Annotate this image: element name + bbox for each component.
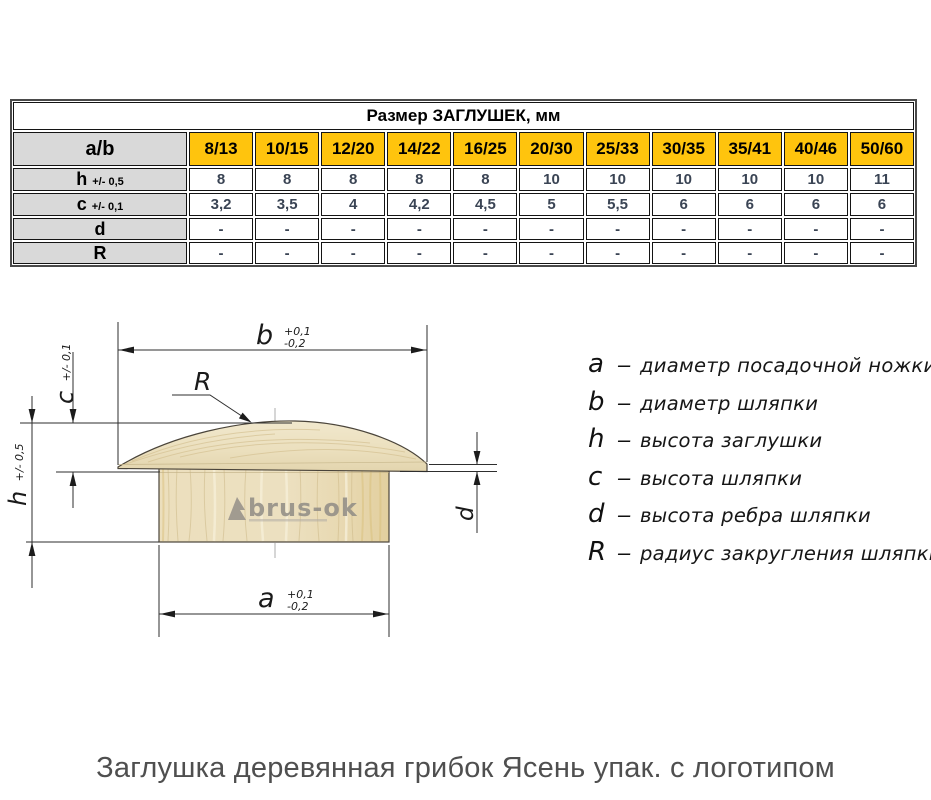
value-R-3: - [387,242,451,264]
legend-symbol: d [588,499,618,529]
value-d-5: - [519,218,583,240]
value-h-3: 8 [387,168,451,191]
legend-dash: – [618,465,640,491]
value-h-5: 10 [519,168,583,191]
corner-header: a/b [13,132,187,166]
value-h-2: 8 [321,168,385,191]
size-column-header-2: 12/20 [321,132,385,166]
value-h-1: 8 [255,168,319,191]
value-h-7: 10 [652,168,716,191]
dim-label-a: a [258,583,275,614]
legend-symbol: b [588,387,618,417]
value-R-10: - [850,242,914,264]
value-d-8: - [718,218,782,240]
value-d-2: - [321,218,385,240]
value-d-1: - [255,218,319,240]
value-d-10: - [850,218,914,240]
value-d-6: - [586,218,650,240]
legend-symbol: c [588,462,618,492]
legend-description: высота ребра шляпки [640,504,871,527]
legend-item-R: R–радиус закругления шляпки [588,537,923,575]
size-column-header-4: 16/25 [453,132,517,166]
value-R-1: - [255,242,319,264]
plug-cap [118,421,427,472]
size-column-header-1: 10/15 [255,132,319,166]
legend-description: высота заглушки [640,429,822,452]
value-c-7: 6 [652,193,716,216]
legend-description: высота шляпки [640,467,802,490]
size-column-header-10: 50/60 [850,132,914,166]
value-c-4: 4,5 [453,193,517,216]
value-h-9: 10 [784,168,848,191]
row-label-d: d [13,218,187,240]
legend-item-a: a–диаметр посадочной ножки [588,349,923,387]
size-column-header-5: 20/30 [519,132,583,166]
value-c-8: 6 [718,193,782,216]
legend-dash: – [618,427,640,453]
legend-symbol: R [588,537,618,567]
dim-label-h: h +/- 0,5 [4,443,32,506]
value-c-5: 5 [519,193,583,216]
value-c-1: 3,5 [255,193,319,216]
value-d-9: - [784,218,848,240]
size-column-header-8: 35/41 [718,132,782,166]
legend-dash: – [618,540,640,566]
legend-item-b: b–диаметр шляпки [588,387,923,425]
row-label-h: h+/- 0,5 [13,168,187,191]
dim-label-c: c +/- 0,1 [51,343,79,404]
size-column-header-9: 40/46 [784,132,848,166]
legend-item-c: c–высота шляпки [588,462,923,500]
value-R-4: - [453,242,517,264]
size-table: Размер ЗАГЛУШЕК, ммa/b8/1310/1512/2014/2… [10,99,917,267]
legend-dash: – [618,390,640,416]
dim-label-d: d [453,506,479,521]
svg-text:-0,2: -0,2 [287,600,308,613]
value-d-0: - [189,218,253,240]
value-R-0: - [189,242,253,264]
dim-label-R: R [194,367,211,396]
legend-item-h: h–высота заглушки [588,424,923,462]
value-c-2: 4 [321,193,385,216]
dim-label-b: b [256,320,273,351]
legend-description: диаметр посадочной ножки [640,354,931,377]
row-label-c: c+/- 0,1 [13,193,187,216]
row-label-R: R [13,242,187,264]
legend-dash: – [618,352,640,378]
value-h-8: 10 [718,168,782,191]
svg-text:-0,2: -0,2 [284,337,305,350]
value-d-3: - [387,218,451,240]
legend-dash: – [618,502,640,528]
value-R-5: - [519,242,583,264]
legend-item-d: d–высота ребра шляпки [588,499,923,537]
watermark: brus-ok [228,494,358,522]
value-h-10: 11 [850,168,914,191]
value-R-2: - [321,242,385,264]
legend-description: диаметр шляпки [640,392,818,415]
value-R-7: - [652,242,716,264]
technical-drawing: brus-ok [0,300,540,645]
legend-description: радиус закругления шляпки [640,542,931,565]
legend-symbol: a [588,349,618,379]
legend: a–диаметр посадочной ножкиb–диаметр шляп… [588,349,923,575]
value-h-0: 8 [189,168,253,191]
value-c-6: 5,5 [586,193,650,216]
size-column-header-3: 14/22 [387,132,451,166]
legend-symbol: h [588,424,618,454]
value-c-3: 4,2 [387,193,451,216]
size-column-header-6: 25/33 [586,132,650,166]
value-h-4: 8 [453,168,517,191]
value-R-6: - [586,242,650,264]
product-caption: Заглушка деревянная грибок Ясень упак. с… [0,752,931,785]
size-column-header-7: 30/35 [652,132,716,166]
watermark-text: brus-ok [248,494,358,522]
value-R-8: - [718,242,782,264]
value-c-10: 6 [850,193,914,216]
value-c-9: 6 [784,193,848,216]
size-column-header-0: 8/13 [189,132,253,166]
value-h-6: 10 [586,168,650,191]
value-d-4: - [453,218,517,240]
value-c-0: 3,2 [189,193,253,216]
value-d-7: - [652,218,716,240]
table-title: Размер ЗАГЛУШЕК, мм [13,102,914,130]
value-R-9: - [784,242,848,264]
